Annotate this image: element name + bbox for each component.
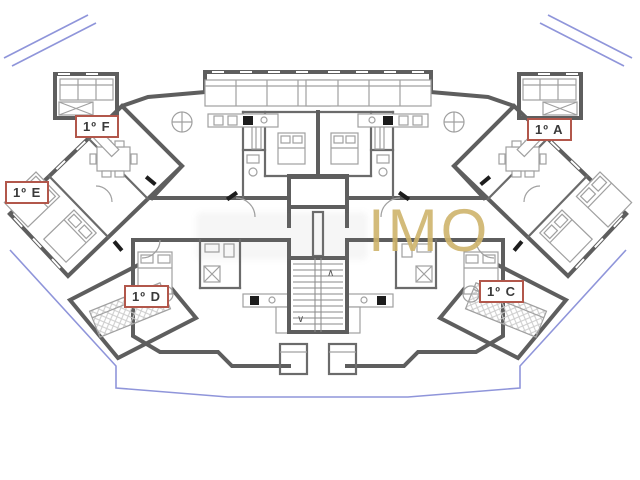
stairs-up-arrow: ∧	[327, 268, 334, 279]
unit-label-f: 1º F	[75, 115, 119, 138]
floor-plan-drawing: ∧ ∨	[0, 0, 640, 480]
elevator-shaft	[289, 177, 347, 207]
stairs-down-arrow: ∨	[297, 314, 304, 325]
unit-label-d: 1º D	[124, 285, 169, 308]
floor-plan-canvas: ∧ ∨ 1º F 1º E 1º A 1º D 1º C IMO	[0, 0, 640, 480]
staircase: ∧ ∨	[289, 258, 347, 332]
right-wing-apartments	[306, 15, 632, 366]
unit-label-e: 1º E	[5, 181, 49, 204]
unit-label-c: 1º C	[479, 280, 524, 303]
unit-label-a: 1º A	[527, 118, 572, 141]
left-wing-apartments	[4, 15, 330, 366]
